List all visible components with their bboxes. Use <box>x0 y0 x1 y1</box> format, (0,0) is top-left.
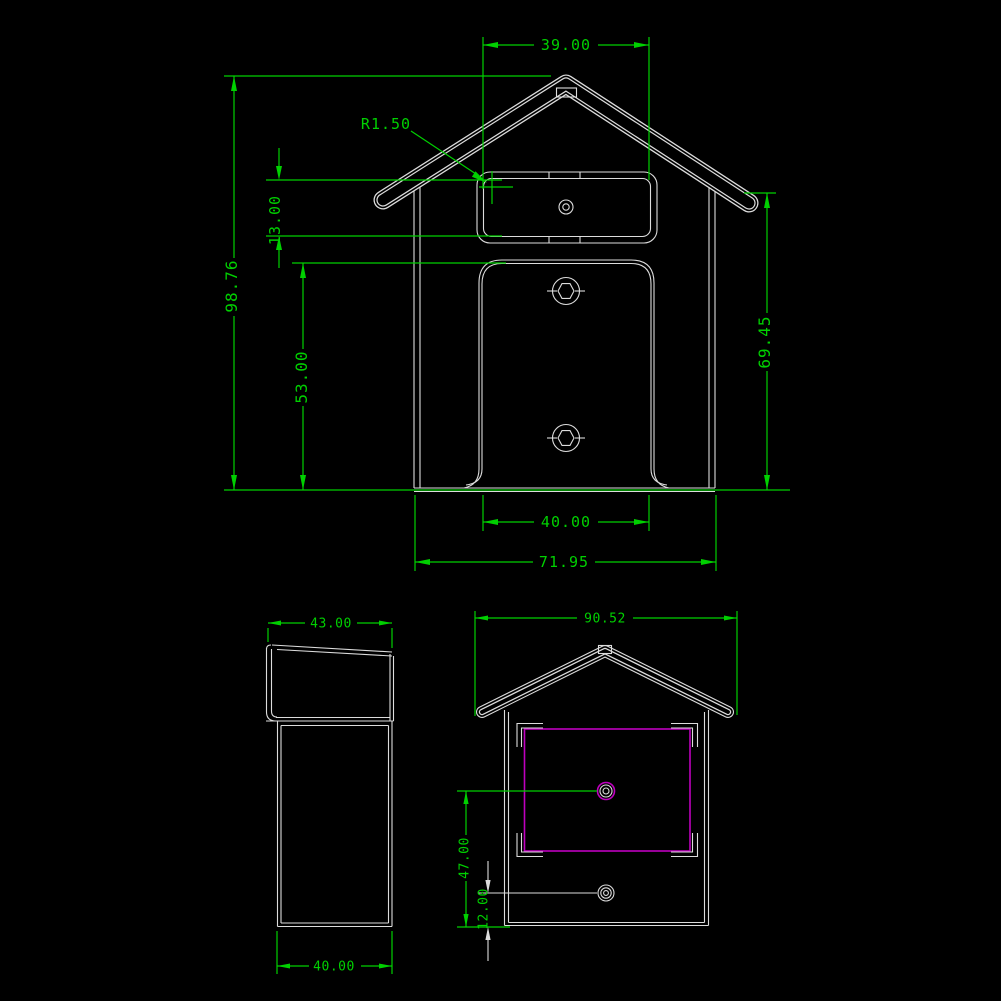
side-lip-inner <box>272 649 278 717</box>
front-upper-hole <box>547 278 585 305</box>
front-slot-hole-outer <box>559 200 573 214</box>
side-roof-top-outer <box>272 645 392 652</box>
dim-inner-width: 40.00 <box>483 495 649 531</box>
front-slot <box>477 172 657 243</box>
dim-label-bottom-depth: 40.00 <box>313 960 355 975</box>
rear-dimensions: 90.52 47.00 12.00 <box>457 611 737 961</box>
dim-lower-hole-height: 12.00 <box>477 861 492 961</box>
dim-label-panel-height: 53.00 <box>292 350 311 403</box>
front-slot-outer <box>477 172 657 243</box>
front-slot-hole-inner <box>563 204 569 210</box>
dim-label-top-depth: 43.00 <box>310 617 352 632</box>
rear-lower-hole-inner <box>604 891 609 896</box>
front-lower-hole-hex <box>558 431 574 446</box>
rear-roof <box>482 646 728 713</box>
cad-drawing-canvas: 39.00 98.76 13.00 <box>0 0 1001 1001</box>
front-upper-hole-hex <box>558 284 574 299</box>
side-lip-top-cap <box>267 645 272 649</box>
rear-upper-hole-outer <box>600 785 612 797</box>
dim-label-overall-width: 71.95 <box>539 553 589 571</box>
side-body <box>278 721 393 927</box>
dim-bottom-depth: 40.00 <box>277 931 392 975</box>
dim-overall-height: 98.76 <box>222 76 790 490</box>
rear-lower-hole <box>478 885 614 901</box>
bracket-top-left <box>517 724 543 748</box>
dim-label-rear-width: 90.52 <box>584 612 626 627</box>
dim-top-depth: 43.00 <box>268 617 392 649</box>
rear-view: 90.52 47.00 12.00 <box>457 611 737 961</box>
side-dimensions: 43.00 40.00 <box>268 617 392 975</box>
dim-label-lower-hole-height: 12.00 <box>477 888 492 930</box>
rear-upper-hole <box>598 783 615 800</box>
dim-label-right-height: 69.45 <box>755 315 774 368</box>
dim-label-slot-height: 13.00 <box>266 195 284 245</box>
dim-label-corner-radius: R1.50 <box>361 115 411 133</box>
rear-highlight-area <box>517 724 698 857</box>
rear-lower-hole-mid <box>601 888 611 898</box>
front-panel-outer <box>464 260 669 488</box>
dim-label-overall-height: 98.76 <box>222 259 241 312</box>
bracket-bottom-right <box>671 833 698 857</box>
dim-right-height: 69.45 <box>744 193 776 490</box>
dim-label-upper-hole-height: 47.00 <box>458 837 473 879</box>
front-view: 39.00 98.76 13.00 <box>222 36 790 571</box>
rear-highlight-rect <box>525 729 691 851</box>
rear-upper-hole-inner <box>603 788 609 794</box>
bracket-top-right <box>671 724 698 748</box>
dim-label-top-width: 39.00 <box>541 36 591 54</box>
dim-label-inner-width: 40.00 <box>541 513 591 531</box>
front-lower-hole <box>547 425 585 452</box>
dim-overall-width: 71.95 <box>415 495 716 571</box>
bracket-bottom-left <box>517 833 543 857</box>
side-view: 43.00 40.00 <box>266 617 394 975</box>
front-inner-panel <box>464 260 669 488</box>
side-roof-slab <box>266 645 394 721</box>
dim-panel-height: 53.00 <box>292 263 506 490</box>
front-roof <box>383 84 749 203</box>
